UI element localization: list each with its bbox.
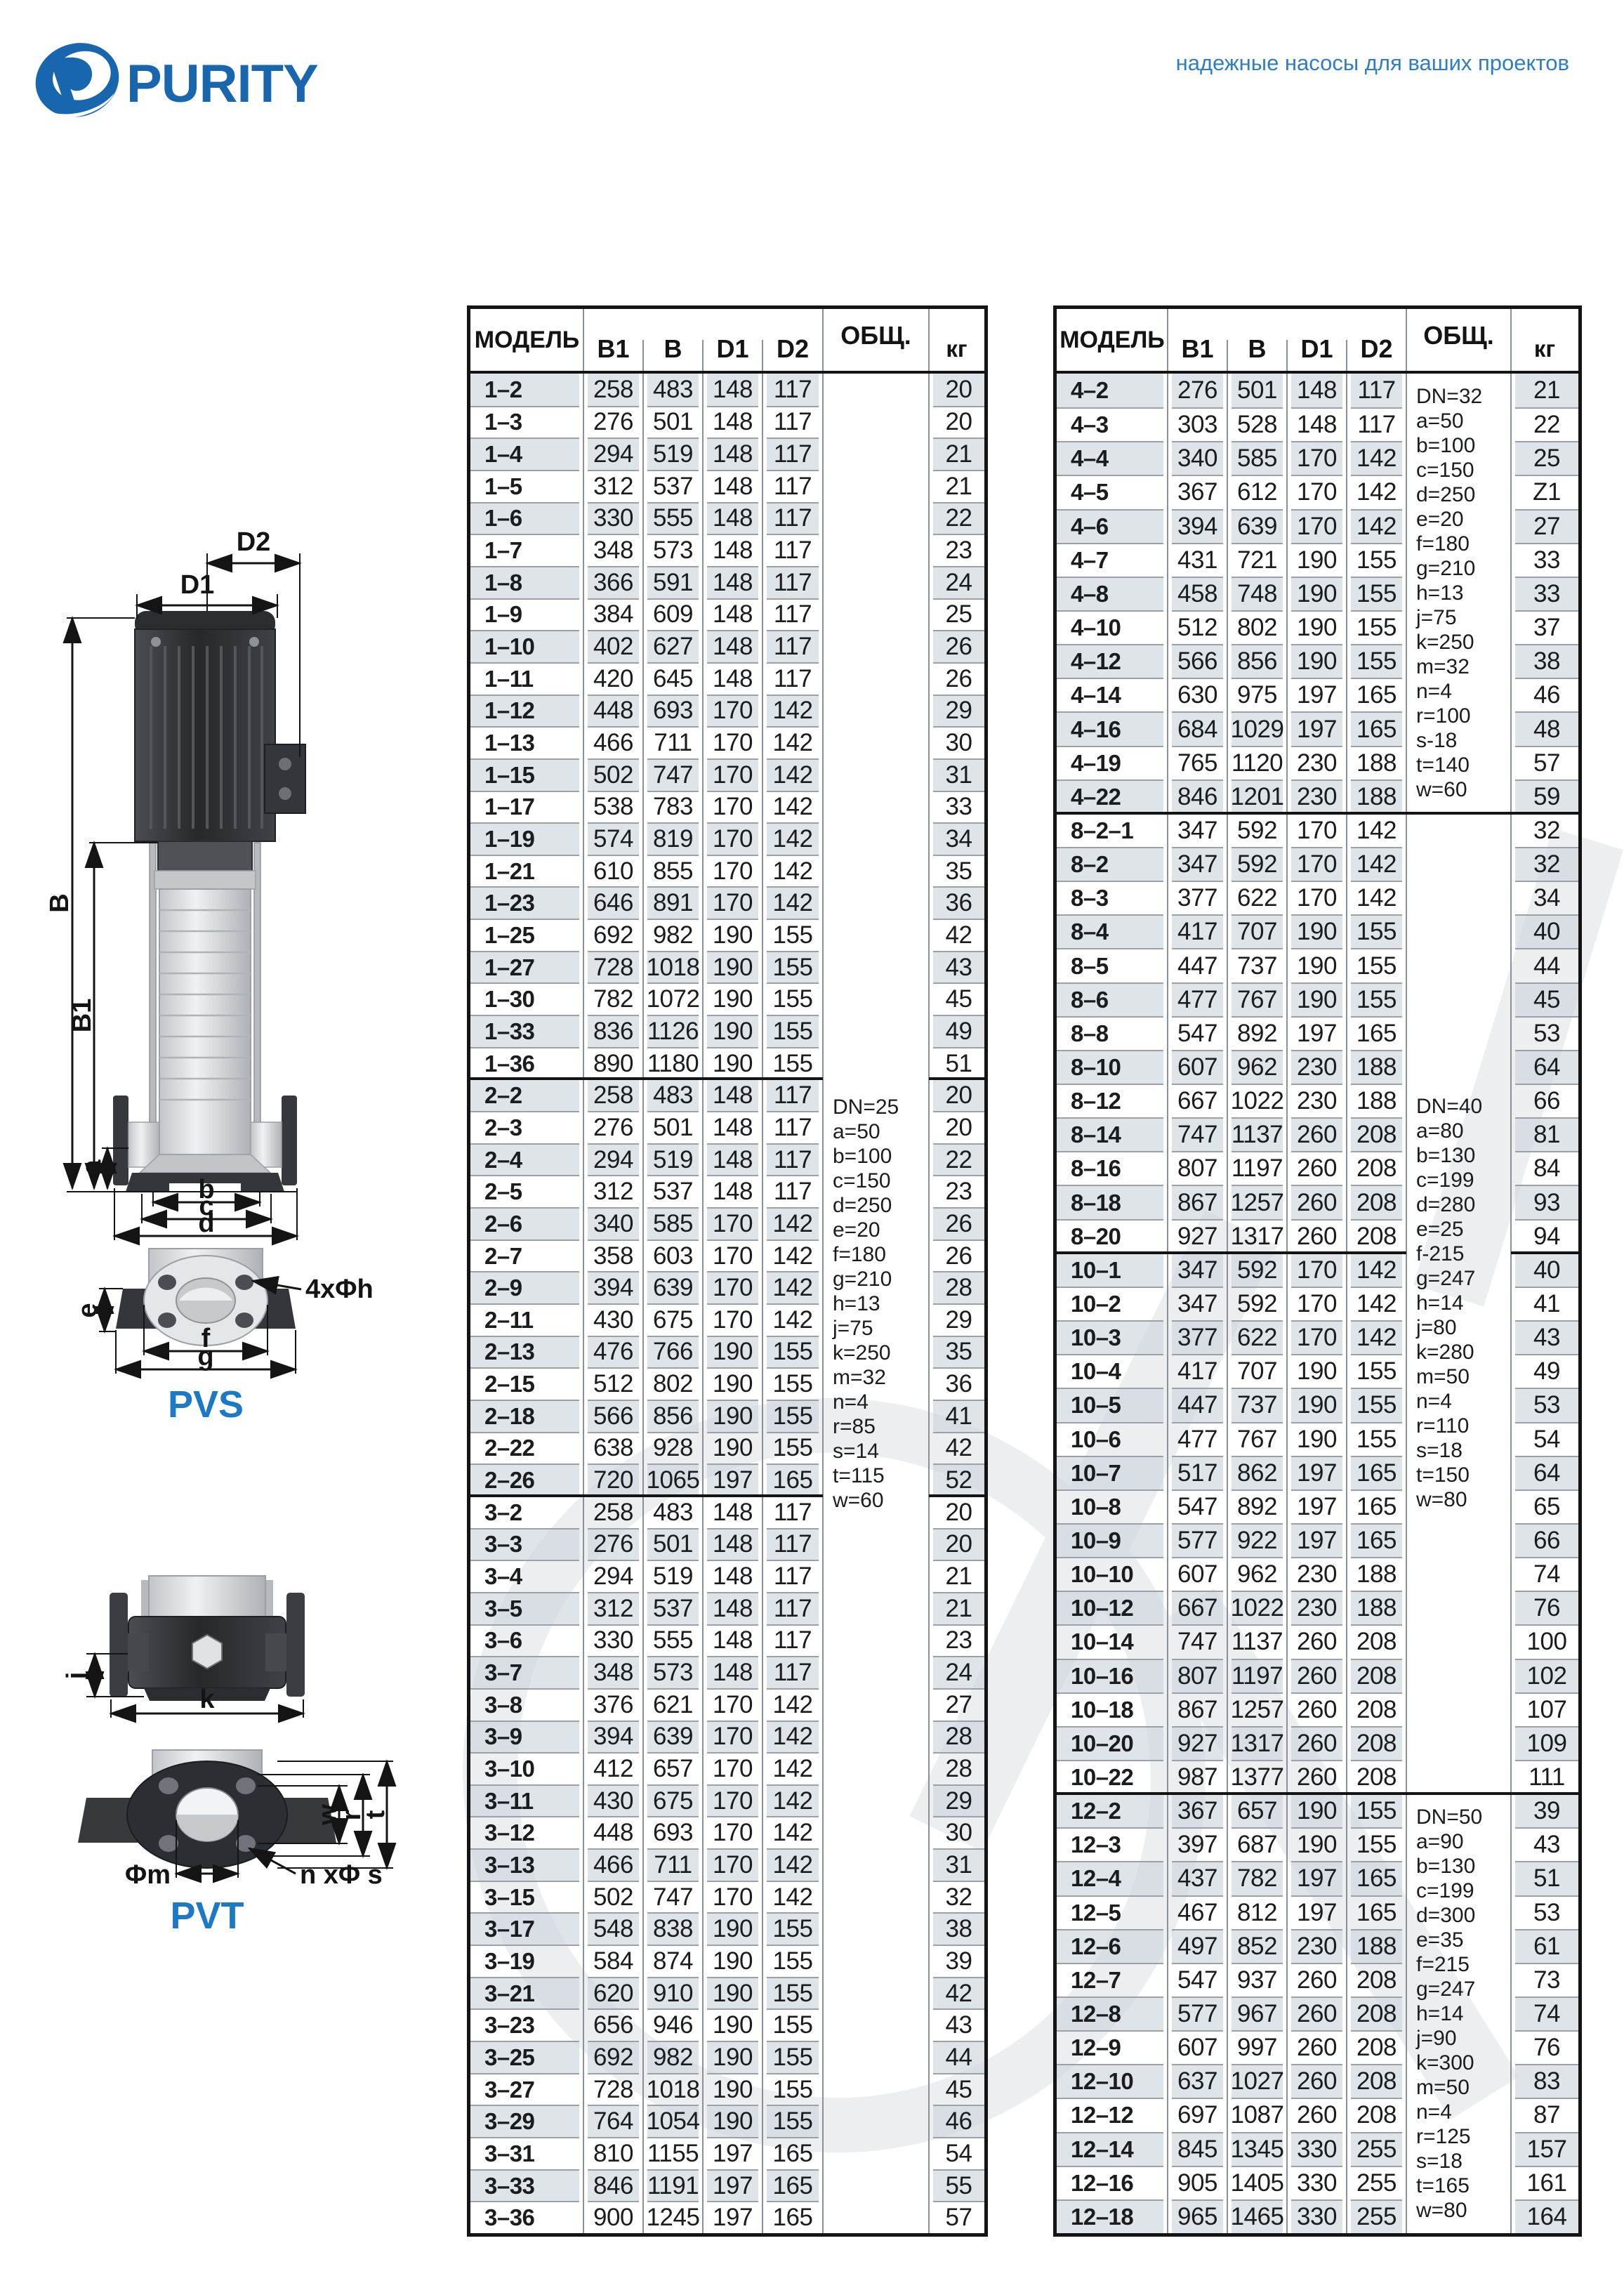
weight-cell: 45 [933,982,984,1015]
dim-cell: 1257 [1232,1185,1283,1218]
model-cell: 2–9 [470,1271,579,1303]
dim-cell: 483 [647,1079,699,1111]
model-cell: 10–1 [1057,1253,1163,1287]
dim-cell: 170 [707,1848,758,1881]
catalog-page: PURITY надежные насосы для ваших проекто… [0,0,1624,2276]
dim-cell: 117 [767,438,819,470]
weight-cell: 74 [1515,1997,1578,2030]
dim-cell: 684 [1172,711,1223,745]
dim-cell: 148 [707,1496,758,1528]
note-line: DN=32 [1416,384,1505,409]
model-cell: 3–19 [470,1945,579,1977]
dim-cell: 555 [647,502,699,534]
dim-cell: 764 [588,2105,639,2137]
weight-cell: Z1 [1515,475,1578,508]
dim-cell: 165 [1351,711,1402,745]
model-cell: 1–10 [470,630,579,662]
dim-cell: 431 [1172,543,1223,577]
dim-cell: 170 [707,886,758,919]
dim-cell: 208 [1351,2098,1402,2131]
dim-cell: 190 [707,1945,758,1977]
dim-cell: 148 [707,1560,758,1592]
weight-cell: 20 [933,1496,984,1528]
dim-cell: 260 [1291,1624,1342,1658]
model-cell: 4–4 [1057,441,1163,475]
dim-cell: 630 [1172,678,1223,711]
note-line: c=199 [1416,1168,1505,1192]
model-cell: 4–5 [1057,475,1163,508]
dim-cell: 170 [707,822,758,855]
dim-cell: 987 [1172,1760,1223,1794]
model-cell: 8–2–1 [1057,813,1163,847]
dim-cell: 667 [1172,1084,1223,1117]
dim-cell: 190 [707,1367,758,1400]
note-line: DN=40 [1416,1094,1505,1119]
note-line: a=80 [1416,1119,1505,1143]
dim-cell: 208 [1351,2030,1402,2064]
dim-cell: 155 [1351,577,1402,610]
column-header-d1: D1 [703,309,763,371]
dim-cell: 197 [707,1463,758,1496]
dim-cell: 148 [707,1111,758,1143]
weight-cell: 74 [1515,1557,1578,1591]
dim-cell: 276 [588,1111,639,1143]
dim-cell: 142 [1351,475,1402,508]
note-line: h=14 [1416,2001,1505,2026]
dim-cell: 765 [1172,746,1223,780]
dim-cell: 142 [767,1239,819,1272]
dim-cell: 155 [1351,610,1402,644]
weight-cell: 21 [933,1592,984,1624]
weight-cell: 20 [933,1111,984,1143]
dim-cell: 303 [1172,407,1223,441]
model-cell: 8–6 [1057,982,1163,1016]
weight-cell: 51 [933,1047,984,1079]
dim-cell: 230 [1291,780,1342,813]
dim-cell: 170 [1291,475,1342,508]
model-cell: 3–36 [470,2201,579,2233]
model-cell: 8–12 [1057,1084,1163,1117]
dim-cell: 165 [1351,1456,1402,1489]
dim-cell: 208 [1351,1726,1402,1760]
dim-cell: 148 [707,1175,758,1207]
weight-cell: 43 [1515,1320,1578,1354]
weight-cell: 35 [933,855,984,887]
dim-cell: 767 [1232,982,1283,1016]
dim-cell: 592 [1232,847,1283,881]
dim-cell: 577 [1172,1997,1223,2030]
note-line: b=100 [1416,433,1505,458]
dim-cell: 260 [1291,1726,1342,1760]
dim-cell: 142 [1351,881,1402,914]
model-cell: 3–29 [470,2105,579,2137]
dim-cell: 170 [707,1721,758,1753]
dim-cell: 592 [1232,1287,1283,1320]
dim-cell: 675 [647,1303,699,1336]
model-cell: 1–36 [470,1047,579,1079]
dim-cell: 982 [647,919,699,951]
dim-cell: 117 [767,374,819,406]
dim-cell: 197 [1291,1489,1342,1523]
dimensions-note: DN=40a=80b=130c=199d=280e=25f-215g=247h=… [1416,813,1505,1794]
note-line: m=32 [1416,654,1505,679]
weight-cell: 41 [1515,1287,1578,1320]
dim-cell: 675 [647,1784,699,1817]
model-cell: 3–10 [470,1752,579,1784]
note-line: m=50 [1416,2075,1505,2100]
dim-cell: 155 [1351,914,1402,948]
dim-cell: 188 [1351,1591,1402,1624]
dim-cell: 502 [588,1881,639,1913]
dim-cell: 170 [1291,1253,1342,1287]
model-cell: 1–21 [470,855,579,887]
weight-cell: 27 [933,1688,984,1721]
model-cell: 1–9 [470,598,579,631]
dim-cell: 208 [1351,2064,1402,2098]
model-cell: 2–22 [470,1432,579,1464]
dim-cell: 962 [1232,1050,1283,1084]
model-cell: 1–27 [470,951,579,983]
group-separator [470,1494,823,1497]
weight-cell: 36 [933,1367,984,1400]
dim-cell: 728 [588,951,639,983]
dim-cell: 692 [588,2041,639,2073]
weight-cell: 64 [1515,1456,1578,1489]
dim-cell: 891 [647,886,699,919]
dim-cell: 260 [1291,1219,1342,1253]
model-cell: 10–9 [1057,1523,1163,1557]
dim-cell: 170 [707,695,758,727]
dim-cell: 155 [1351,1827,1402,1861]
dim-cell: 366 [588,566,639,598]
dim-cell: 148 [707,566,758,598]
dim-cell: 547 [1172,1963,1223,1997]
dim-cell: 208 [1351,1151,1402,1185]
model-cell: 12–16 [1057,2166,1163,2199]
dim-cell: 607 [1172,2030,1223,2064]
weight-cell: 42 [933,1977,984,2009]
dim-cell: 165 [1351,1861,1402,1895]
dim-cell: 190 [1291,1388,1342,1421]
dim-cell: 276 [588,1528,639,1560]
dim-cell: 612 [1232,475,1283,508]
weight-cell: 26 [933,1239,984,1272]
dim-cell: 170 [1291,847,1342,881]
dim-cell: 117 [767,630,819,662]
dim-cell: 117 [767,502,819,534]
weight-cell: 33 [933,791,984,823]
dim-cell: 1022 [1232,1084,1283,1117]
note-line: e=25 [1416,1217,1505,1242]
dim-cell: 197 [707,2201,758,2233]
column-header-b1: B1 [583,309,643,371]
model-cell: 2–3 [470,1111,579,1143]
dim-cell: 190 [707,1432,758,1464]
dim-cell: 260 [1291,2030,1342,2064]
note-line: s=18 [1416,1438,1505,1463]
dim-cell: 170 [1291,441,1342,475]
dim-cell: 148 [707,1592,758,1624]
model-cell: 2–18 [470,1400,579,1432]
weight-cell: 53 [1515,1895,1578,1929]
dim-cell: 142 [1351,1320,1402,1354]
weight-cell: 59 [1515,780,1578,813]
note-line: h=14 [1416,1291,1505,1315]
dim-cell: 430 [588,1303,639,1336]
dim-cell: 142 [767,1271,819,1303]
dim-cell: 190 [1291,948,1342,982]
dim-cell: 697 [1172,2098,1223,2131]
dim-cell: 142 [1351,509,1402,543]
weight-cell: 49 [1515,1354,1578,1388]
weight-cell: 42 [933,1432,984,1464]
dim-cell: 747 [1172,1117,1223,1151]
dim-cell: 190 [1291,644,1342,678]
group-separator [929,1077,984,1080]
model-cell: 3–5 [470,1592,579,1624]
dim-cell: 197 [1291,1016,1342,1050]
weight-cell: 31 [933,758,984,791]
dim-cell: 420 [588,662,639,695]
weight-cell: 20 [933,374,984,406]
dim-cell: 358 [588,1239,639,1272]
weight-cell: 32 [1515,813,1578,847]
dim-cell: 170 [1291,509,1342,543]
dim-cell: 117 [767,470,819,502]
dim-cell: 1137 [1232,1117,1283,1151]
note-line: w=80 [1416,1487,1505,1512]
dim-cell: 692 [588,919,639,951]
weight-cell: 111 [1515,1760,1578,1794]
weight-cell: 94 [1515,1219,1578,1253]
weight-cell: 66 [1515,1084,1578,1117]
group-separator [1057,812,1406,815]
dim-cell: 155 [767,982,819,1015]
dim-cell: 170 [707,1816,758,1848]
note-line: e=35 [1416,1928,1505,1952]
model-cell: 2–5 [470,1175,579,1207]
model-cell: 2–15 [470,1367,579,1400]
note-line: h=13 [1416,581,1505,605]
dim-cell: 258 [588,374,639,406]
dim-cell: 637 [1172,2064,1223,2098]
dim-cell: 477 [1172,1422,1223,1456]
weight-cell: 45 [933,2073,984,2105]
dim-cell: 170 [707,1271,758,1303]
dim-cell: 117 [767,1656,819,1688]
dim-cell: 501 [647,406,699,438]
dim-cell: 846 [588,2169,639,2202]
weight-cell: 81 [1515,1117,1578,1151]
weight-cell: 109 [1515,1726,1578,1760]
dim-cell: 927 [1172,1219,1223,1253]
model-cell: 3–27 [470,2073,579,2105]
dim-cell: 519 [647,1560,699,1592]
dim-cell: 148 [707,470,758,502]
dim-cell: 155 [1351,543,1402,577]
model-cell: 1–13 [470,726,579,758]
dim-cell: 573 [647,534,699,566]
weight-cell: 107 [1515,1692,1578,1726]
model-cell: 4–2 [1057,374,1163,407]
dim-cell: 867 [1172,1185,1223,1218]
weight-cell: 26 [933,662,984,695]
dim-cell: 155 [767,1400,819,1432]
weight-cell: 21 [1515,374,1578,407]
model-cell: 10–12 [1057,1591,1163,1624]
note-line: w=80 [1416,2198,1505,2223]
dim-cell: 148 [707,662,758,695]
model-cell: 10–18 [1057,1692,1163,1726]
weight-cell: 28 [933,1721,984,1753]
dim-cell: 347 [1172,813,1223,847]
weight-cell: 55 [933,2169,984,2202]
dim-cell: 1201 [1232,780,1283,813]
weight-cell: 30 [933,726,984,758]
model-cell: 1–5 [470,470,579,502]
dim-cell: 142 [767,822,819,855]
dim-cell: 348 [588,1656,639,1688]
model-cell: 1–7 [470,534,579,566]
weight-cell: 32 [1515,847,1578,881]
dim-cell: 142 [767,1207,819,1239]
dim-cell: 394 [1172,509,1223,543]
model-cell: 10–4 [1057,1354,1163,1388]
model-cell: 1–23 [470,886,579,919]
note-line: e=20 [833,1218,923,1242]
dim-cell: 260 [1291,1659,1342,1692]
dim-cell: 607 [1172,1050,1223,1084]
dim-cell: 260 [1291,1997,1342,2030]
model-cell: 3–15 [470,1881,579,1913]
dim-cell: 258 [588,1496,639,1528]
model-cell: 2–11 [470,1303,579,1336]
dim-cell: 170 [707,1881,758,1913]
dim-cell: 519 [647,438,699,470]
dim-cell: 197 [1291,1456,1342,1489]
dim-cell: 347 [1172,1253,1223,1287]
dim-cell: 693 [647,1816,699,1848]
dim-cell: 188 [1351,1084,1402,1117]
weight-cell: 39 [933,1945,984,1977]
model-cell: 3–31 [470,2137,579,2169]
dim-cell: 117 [767,598,819,631]
dim-cell: 512 [1172,610,1223,644]
weight-cell: 21 [933,438,984,470]
dim-cell: 538 [588,791,639,823]
dim-cell: 148 [1291,407,1342,441]
weight-cell: 23 [933,1624,984,1657]
dim-cell: 448 [588,1816,639,1848]
weight-cell: 23 [933,1175,984,1207]
dim-cell: 190 [1291,543,1342,577]
model-cell: 4–3 [1057,407,1163,441]
dim-cell: 1191 [647,2169,699,2202]
dim-cell: 190 [707,1015,758,1047]
note-line: r=100 [1416,704,1505,728]
dim-cell: 117 [1351,407,1402,441]
weight-cell: 21 [933,470,984,502]
note-line: a=50 [1416,409,1505,433]
note-line: t=150 [1416,1463,1505,1487]
model-cell: 10–5 [1057,1388,1163,1421]
weight-cell: 20 [933,1079,984,1111]
column-header-kg: кг [929,309,984,371]
weight-cell: 38 [1515,644,1578,678]
dim-cell: 367 [1172,1794,1223,1827]
dim-cell: 170 [1291,1320,1342,1354]
note-line: b=130 [1416,1143,1505,1168]
dim-cell: 384 [588,598,639,631]
dim-cell: 170 [707,1239,758,1272]
dim-cell: 148 [707,502,758,534]
model-cell: 10–16 [1057,1659,1163,1692]
weight-cell: 24 [933,1656,984,1688]
dim-cell: 592 [1232,813,1283,847]
dim-cell: 155 [767,1432,819,1464]
dim-cell: 836 [588,1015,639,1047]
dim-cell: 447 [1172,1388,1223,1421]
dim-cell: 397 [1172,1827,1223,1861]
note-line: n=4 [1416,1389,1505,1414]
dim-cell: 155 [767,2008,819,2041]
model-cell: 8–8 [1057,1016,1163,1050]
dim-cell: 537 [647,1175,699,1207]
dim-cell: 657 [1232,1794,1283,1827]
note-line: a=90 [1416,1829,1505,1854]
model-cell: 3–4 [470,1560,579,1592]
weight-cell: 26 [933,630,984,662]
dim-cell: 802 [647,1367,699,1400]
weight-cell: 22 [933,1143,984,1176]
dim-cell: 142 [767,1721,819,1753]
dim-cell: 165 [1351,1523,1402,1557]
note-line: k=250 [1416,630,1505,654]
model-cell: 4–14 [1057,678,1163,711]
dim-cell: 117 [767,1528,819,1560]
dim-cell: 142 [767,1784,819,1817]
weight-cell: 20 [933,1528,984,1560]
dim-cell: 417 [1172,914,1223,948]
weight-cell: 25 [1515,441,1578,475]
dim-cell: 260 [1291,2064,1342,2098]
weight-cell: 40 [1515,914,1578,948]
dim-cell: 190 [1291,914,1342,948]
dim-cell: 142 [1351,813,1402,847]
model-cell: 3–11 [470,1784,579,1817]
spec-table-right: МОДЕЛЬB1BD1D2ОБЩ.кг4–2276501148117214–33… [1053,305,1582,2237]
weight-cell: 76 [1515,1591,1578,1624]
dim-cell: 190 [1291,1354,1342,1388]
note-line: f=180 [1416,532,1505,556]
model-cell: 2–7 [470,1239,579,1272]
dim-cell: 348 [588,534,639,566]
weight-cell: 65 [1515,1489,1578,1523]
dim-cell: 566 [1172,644,1223,678]
dim-cell: 142 [767,791,819,823]
dim-cell: 148 [707,1143,758,1176]
dim-cell: 610 [588,855,639,887]
dim-cell: 802 [1232,610,1283,644]
model-cell: 1–8 [470,566,579,598]
column-header-b: B [643,309,703,371]
dim-cell: 330 [1291,2132,1342,2166]
weight-cell: 46 [933,2105,984,2137]
dim-cell: 190 [1291,982,1342,1016]
weight-cell: 33 [1515,577,1578,610]
dim-cell: 622 [1232,881,1283,914]
dim-cell: 294 [588,1560,639,1592]
